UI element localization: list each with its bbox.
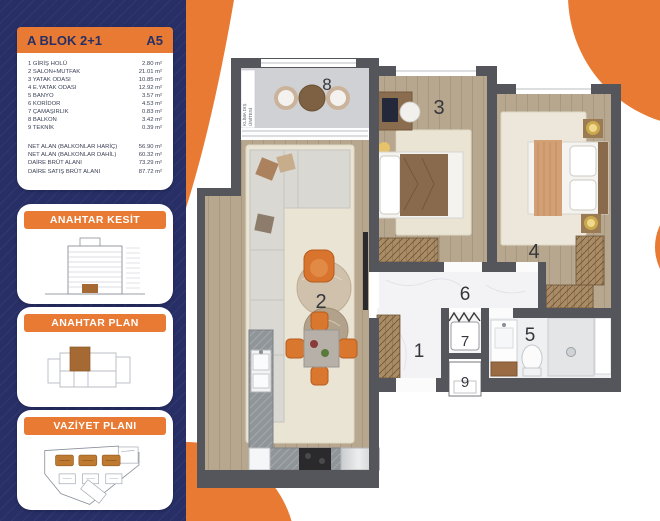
total-label: DAİRE SATIŞ BRÜT ALANI [28,168,100,176]
bedroom4-wardrobe-2 [546,285,593,308]
total-value: 56.90 m² [139,143,162,151]
bedroom4-wardrobe-1 [576,236,604,285]
balcony-table [299,85,325,111]
balcony-furniture [274,85,350,111]
klima-label-line1: KLİMA DIŞ [241,104,247,126]
room-list-row: 1 GİRİŞ HOLÜ2.80 m² [28,60,162,68]
desk-chair [400,102,420,122]
room-area: 4.53 m² [142,100,162,108]
site-blocks-orange [56,455,121,466]
room-label-balcony: 8 [322,75,331,94]
total-label: NET ALAN (BALKONLAR HARİÇ) [28,143,117,151]
room-area: 0.83 m² [142,108,162,116]
pillow [570,146,596,176]
totals-row: NET ALAN (BALKONLAR DAHİL)60.32 m² [28,151,162,159]
room-name: 8 BALKON [28,116,57,124]
room-label-corridor: 6 [460,284,471,305]
room-area-list: 1 GİRİŞ HOLÜ2.80 m²2 SALON+MUTFAK21.01 m… [17,60,173,132]
double-bed [528,140,608,216]
brochure-page: { "header": { "block": "A BLOK 2+1", "un… [0,0,660,521]
total-value: 87.72 m² [139,168,162,176]
totals-row: DAİRE BRÜT ALANI73.29 m² [28,159,162,167]
section-title-plan: ANAHTAR PLAN [24,314,166,332]
room-area: 3.42 m² [142,116,162,124]
room-name: 3 YATAK ODASI [28,76,71,84]
highlighted-floor [82,284,98,293]
unit-info-card: A BLOK 2+1 A5 1 GİRİŞ HOLÜ2.80 m²2 SALON… [17,27,173,190]
total-label: DAİRE BRÜT ALANI [28,159,82,167]
key-plan-diagram [30,335,160,405]
room-list-row: 8 BALKON3.42 m² [28,116,162,124]
room-area: 12.92 m² [139,84,162,92]
section-title-vaziyet: VAZİYET PLANI [24,417,166,435]
room-name: 7 ÇAMAŞIRLIK [28,108,69,116]
room-label-living: 2 [315,291,326,313]
room-list-row: 2 SALON+MUTFAK21.01 m² [28,68,162,76]
laptop [382,98,398,122]
bathroom-fixtures [491,318,611,376]
total-label: NET ALAN (BALKONLAR DAHİL) [28,151,116,159]
room-label-bedroom4: 4 [528,241,539,263]
building-section-diagram [30,232,160,302]
room-name: 6 KORİDOR [28,100,60,108]
unit-info-header: A BLOK 2+1 A5 [17,27,173,53]
room-name: 4 E.YATAK ODASI [28,84,76,92]
cooktop [299,448,331,470]
room-area: 10.85 m² [139,76,162,84]
room-label-technical: 9 [461,374,469,391]
single-bed [378,152,463,218]
bath-cabinet [491,362,517,376]
bedroom3-wardrobe [378,238,438,262]
area-totals-list: NET ALAN (BALKONLAR HARİÇ)56.90 m²NET AL… [17,143,173,176]
totals-row: DAİRE SATIŞ BRÜT ALANI87.72 m² [28,168,162,176]
shower-drain [567,348,576,357]
site-plan-diagram [27,438,163,508]
unit-code: A5 [146,33,163,48]
headboard [598,142,608,214]
room-label-laundry: 7 [461,333,469,350]
room-list-row: 6 KORİDOR4.53 m² [28,100,162,108]
total-value: 60.32 m² [139,151,162,159]
dishwasher [249,448,270,470]
room-name: 1 GİRİŞ HOLÜ [28,60,67,68]
floor-tick-labels [126,248,140,288]
room-area: 2.80 m² [142,60,162,68]
tv-unit [363,232,368,310]
pillow [380,156,400,214]
floor-plan: KLİMA DIŞ ÜNİTESİ [186,0,660,521]
section-anahtar-plan: ANAHTAR PLAN [17,307,173,407]
klima-label-line2: ÜNİTESİ [247,108,253,126]
room-list-row: 7 ÇAMAŞIRLIK0.83 m² [28,108,162,116]
room-label-bathroom: 5 [525,325,536,346]
room-label-hall: 1 [414,341,425,362]
room-name: 2 SALON+MUTFAK [28,68,80,76]
block-title: A BLOK 2+1 [27,33,102,48]
toilet [522,345,542,371]
corridor-floor [379,272,538,308]
pillow [570,180,596,210]
section-title-kesit: ANAHTAR KESİT [24,211,166,229]
room-name: 9 TEKNİK [28,124,54,132]
total-value: 73.29 m² [139,159,162,167]
room-list-row: 3 YATAK ODASI10.85 m² [28,76,162,84]
shaft-niche [595,318,611,374]
totals-row: NET ALAN (BALKONLAR HARİÇ)56.90 m² [28,143,162,151]
highlighted-unit [70,347,90,371]
room-area: 3.57 m² [142,92,162,100]
room-label-bedroom3: 3 [433,97,444,119]
section-anahtar-kesit: ANAHTAR KESİT [17,204,173,304]
armchair-seat [310,259,328,277]
room-name: 5 BANYO [28,92,54,100]
section-vaziyet-plani: VAZİYET PLANI [17,410,173,510]
hall-wardrobe [377,315,400,378]
room-list-row: 5 BANYO3.57 m² [28,92,162,100]
room-list-row: 4 E.YATAK ODASI12.92 m² [28,84,162,92]
room-area: 0.39 m² [142,124,162,132]
room-list-row: 9 TEKNİK0.39 m² [28,124,162,132]
room-area: 21.01 m² [139,68,162,76]
